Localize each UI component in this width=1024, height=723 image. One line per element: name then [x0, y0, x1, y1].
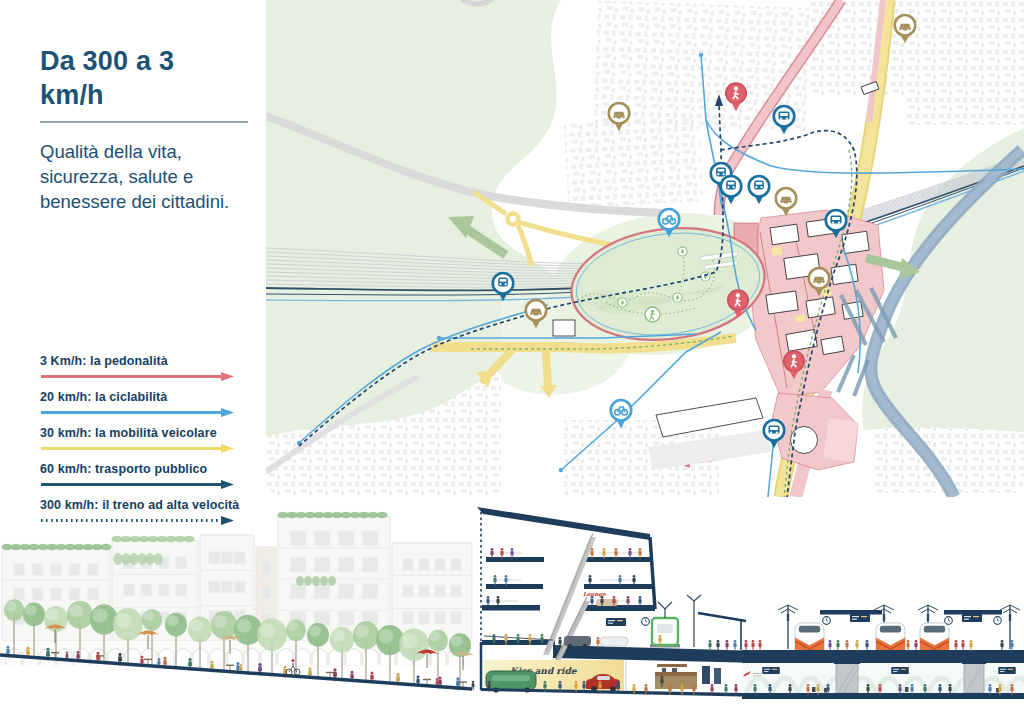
legend-item-bike: 20 km/h: la ciclabilità [40, 390, 250, 418]
section-illustration: Lounge Kiss and ride [0, 497, 1024, 723]
legend-arrow-pedestrian [40, 371, 236, 382]
page-title: Da 300 a 3 km/h [40, 44, 255, 112]
platform-canopy [820, 610, 882, 615]
legend-arrow-bike [40, 407, 236, 418]
platform-board [962, 614, 982, 622]
section-platforms [742, 605, 1024, 663]
page-subtitle: Qualità della vita, sicurezza, salute e … [40, 139, 255, 214]
title-divider [40, 121, 248, 123]
highspeed-train [920, 623, 949, 650]
slide: Da 300 a 3 km/h Qualità della vita, sicu… [0, 0, 1024, 723]
legend-item-pedestrian: 3 Km/h: la pedonalità [40, 354, 250, 382]
platform-canopy [944, 610, 1002, 615]
masterplan-map [266, 0, 1024, 497]
departure-board [606, 618, 626, 626]
concourse-sign [891, 667, 909, 674]
concourse-sign [762, 667, 780, 674]
park-tree-icon [701, 272, 710, 281]
highspeed-train [795, 623, 824, 650]
ticket-kiosk [714, 668, 721, 684]
catenary-mast [1000, 605, 1020, 649]
park-person-icon [645, 307, 660, 322]
section-station: Lounge Kiss and ride [477, 507, 760, 693]
platform-board [850, 614, 870, 622]
legend-arrow-transit [40, 479, 236, 490]
title-line-2: km/h [40, 78, 255, 112]
left-panel: Da 300 a 3 km/h Qualità della vita, sicu… [40, 44, 255, 214]
station-clock [642, 618, 650, 626]
legend-arrow-car [40, 443, 236, 454]
legend-item-car: 30 km/h: la mobilità veicolare [40, 426, 250, 454]
tram [650, 595, 701, 648]
park-tree-icon [678, 247, 687, 256]
title-line-1: Da 300 a 3 [40, 44, 255, 78]
park-tree-icon [618, 298, 627, 307]
platform-clock [945, 617, 953, 625]
concourse-sign [998, 667, 1016, 674]
platform-clock [994, 617, 1002, 625]
platform-clock [823, 617, 831, 625]
park-tree-icon [673, 293, 682, 302]
ticket-kiosk [702, 666, 710, 684]
legend-item-transit: 60 km/h: trasporto pubblico [40, 462, 250, 490]
highspeed-train [876, 623, 905, 650]
